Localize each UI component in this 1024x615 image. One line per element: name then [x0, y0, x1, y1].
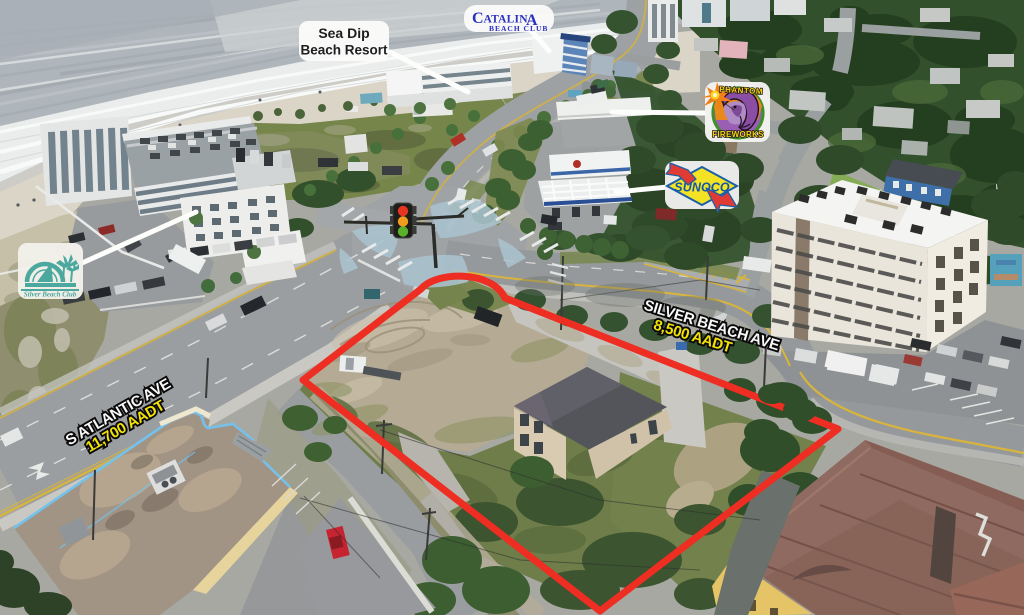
svg-text:FIREWORKS: FIREWORKS [712, 130, 764, 139]
svg-text:C: C [472, 10, 484, 27]
svg-text:SUNOCO: SUNOCO [674, 181, 730, 195]
svg-text:Beach Resort: Beach Resort [300, 43, 388, 58]
svg-text:Silver Beach Club: Silver Beach Club [24, 291, 77, 299]
svg-text:BEACH CLUB: BEACH CLUB [489, 24, 548, 33]
svg-text:Sea Dip: Sea Dip [318, 25, 369, 41]
